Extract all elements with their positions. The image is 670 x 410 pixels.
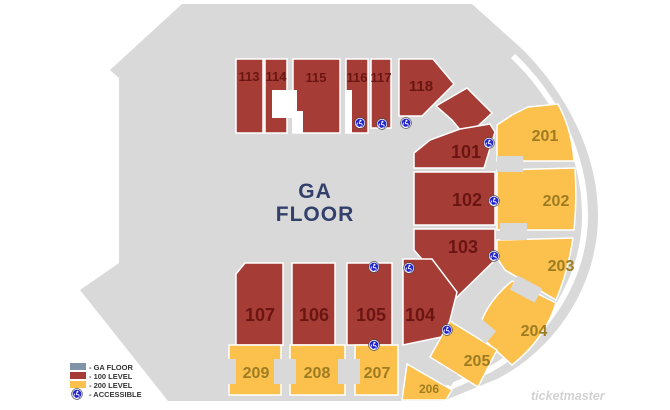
accessible-icon (489, 251, 500, 262)
accessible-icon (401, 118, 412, 129)
section-208[interactable]: 208 (290, 345, 345, 395)
section-label: 203 (548, 258, 575, 275)
accessible-icon (355, 118, 366, 129)
accessible-icon (484, 138, 495, 149)
section-105[interactable]: 105 (347, 263, 392, 345)
vomitory-notch (345, 90, 352, 133)
section-label: 202 (543, 193, 570, 210)
accessible-icon (369, 340, 380, 351)
section-label: 204 (521, 323, 548, 340)
seating-map: 113 114 115 116 117 118 101 102 103 104 (0, 0, 670, 410)
vomitory-tab (497, 156, 523, 172)
legend-label-100-level: - 100 LEVEL (89, 372, 133, 381)
section-209[interactable]: 209 (229, 345, 281, 395)
legend-label-200-level: - 200 LEVEL (89, 381, 133, 390)
accessible-icon (404, 263, 415, 274)
section-label: 208 (304, 365, 331, 382)
ticketmaster-watermark: ticketmaster (531, 389, 606, 403)
seating-chart-page: 113 114 115 116 117 118 101 102 103 104 (0, 0, 670, 410)
accessible-icon (442, 325, 453, 336)
legend-swatch-ga-floor (70, 363, 86, 370)
accessible-legend-icon (72, 389, 83, 400)
accessible-icon (377, 119, 388, 130)
section-label: 206 (419, 382, 439, 396)
section-106[interactable]: 106 (292, 263, 335, 345)
legend: - GA FLOOR - 100 LEVEL - 200 LEVEL - ACC… (70, 363, 142, 399)
legend-label-accessible: - ACCESSIBLE (89, 390, 142, 399)
section-label: 104 (405, 305, 435, 325)
section-label: 201 (532, 128, 559, 145)
section-label: 107 (245, 305, 275, 325)
legend-label-ga-floor: - GA FLOOR (89, 363, 133, 372)
accessible-icon (489, 196, 500, 207)
ga-floor-label-line2: FLOOR (276, 203, 355, 226)
section-label: 113 (239, 69, 260, 84)
section-label: 209 (243, 365, 270, 382)
section-label: 116 (347, 70, 368, 85)
section-207[interactable]: 207 (355, 345, 398, 395)
section-label: 101 (451, 142, 481, 162)
section-label: 118 (409, 78, 433, 95)
section-label: 106 (299, 305, 329, 325)
legend-swatch-200-level (70, 381, 86, 388)
section-label: 117 (371, 70, 392, 85)
section-113[interactable]: 113 (236, 59, 263, 133)
section-label: 102 (452, 190, 482, 210)
vomitory-tab (222, 359, 236, 384)
section-label: 207 (364, 365, 391, 382)
section-107[interactable]: 107 (236, 263, 283, 345)
section-202[interactable]: 202 (497, 168, 576, 230)
vomitory-tab (500, 223, 527, 240)
section-117[interactable]: 117 (371, 59, 392, 128)
vomitory-notch (292, 111, 303, 133)
section-label: 205 (464, 353, 491, 370)
section-102[interactable]: 102 (414, 172, 495, 225)
section-label: 114 (266, 69, 288, 84)
legend-swatch-100-level (70, 372, 86, 379)
vomitory-tab (338, 359, 360, 384)
section-label: 103 (448, 237, 478, 257)
section-label: 115 (306, 70, 327, 85)
section-label: 105 (356, 305, 386, 325)
vomitory-tab (274, 359, 296, 384)
accessible-icon (369, 262, 380, 273)
ga-floor-label-line1: GA (298, 180, 332, 203)
